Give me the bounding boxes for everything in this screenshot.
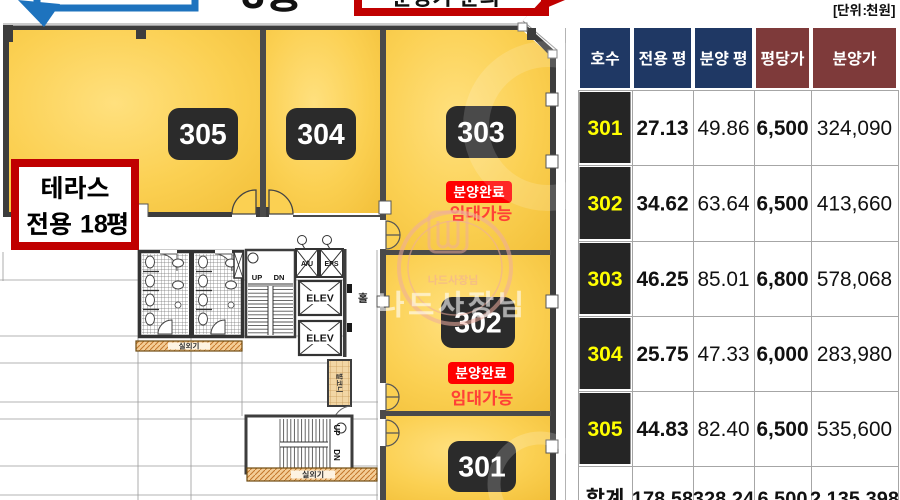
- svg-text:6,800: 6,800: [756, 268, 808, 291]
- svg-text:27.13: 27.13: [636, 117, 688, 140]
- svg-text:]: ]: [891, 3, 896, 18]
- svg-text:304: 304: [297, 119, 345, 151]
- svg-text:2,135,398: 2,135,398: [810, 489, 899, 500]
- svg-text:DN: DN: [274, 273, 285, 282]
- svg-text:283,980: 283,980: [817, 343, 892, 366]
- svg-text:82.40: 82.40: [697, 418, 749, 441]
- svg-text:305: 305: [587, 418, 622, 441]
- svg-text:305: 305: [179, 119, 227, 151]
- svg-text:6,500: 6,500: [757, 489, 807, 500]
- svg-text:UP: UP: [252, 273, 262, 282]
- svg-text:47.33: 47.33: [697, 343, 749, 366]
- svg-text:178.58: 178.58: [632, 489, 693, 500]
- svg-text:301: 301: [587, 117, 622, 140]
- svg-text:DN: DN: [332, 449, 341, 461]
- svg-text:6,500: 6,500: [756, 418, 808, 441]
- svg-text:[: [: [833, 3, 838, 18]
- svg-text:85.01: 85.01: [697, 268, 749, 291]
- svg-text:ELEV: ELEV: [306, 333, 333, 345]
- svg-text:ELEV: ELEV: [306, 293, 333, 305]
- svg-text:578,068: 578,068: [817, 268, 892, 291]
- svg-text:328.24: 328.24: [693, 489, 755, 500]
- svg-text::: :: [863, 3, 868, 18]
- svg-text:EPS: EPS: [324, 261, 338, 268]
- svg-text:302: 302: [587, 193, 622, 216]
- svg-text:6,500: 6,500: [756, 193, 808, 216]
- svg-text:49.86: 49.86: [697, 117, 749, 140]
- svg-text:6,500: 6,500: [756, 117, 808, 140]
- svg-text:25.75: 25.75: [636, 343, 688, 366]
- svg-text:304: 304: [587, 343, 622, 366]
- svg-text:303: 303: [587, 268, 622, 291]
- svg-text:3: 3: [241, 0, 264, 17]
- svg-text:34.62: 34.62: [636, 193, 688, 216]
- svg-text:46.25: 46.25: [636, 268, 688, 291]
- svg-text:18: 18: [80, 211, 108, 239]
- svg-text:324,090: 324,090: [817, 117, 892, 140]
- svg-text:6,000: 6,000: [756, 343, 808, 366]
- svg-text:413,660: 413,660: [817, 193, 892, 216]
- svg-text:44.83: 44.83: [636, 418, 688, 441]
- svg-text:A/U: A/U: [301, 261, 313, 268]
- svg-text:535,600: 535,600: [817, 418, 892, 441]
- svg-text:63.64: 63.64: [697, 193, 749, 216]
